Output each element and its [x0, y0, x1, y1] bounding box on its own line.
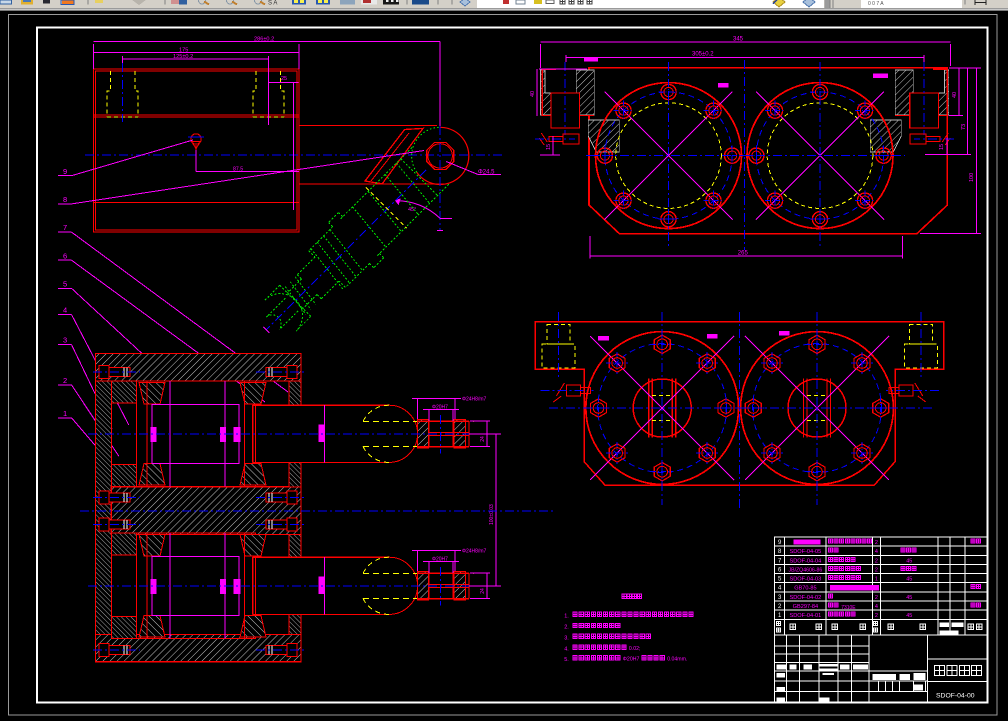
svg-text:2: 2: [63, 376, 67, 385]
svg-text:24: 24: [480, 588, 486, 594]
svg-text:265: 265: [738, 251, 749, 257]
svg-text:0 0 7 A: 0 0 7 A: [868, 1, 884, 7]
svg-text:SDOF-04-00: SDOF-04-00: [936, 692, 975, 699]
svg-text:Φ24.5: Φ24.5: [478, 170, 495, 176]
svg-text:4.: 4.: [564, 646, 569, 652]
svg-text:5.: 5.: [564, 657, 569, 663]
svg-text:2: 2: [875, 558, 878, 564]
svg-text:100: 100: [969, 173, 975, 182]
svg-text:45: 45: [906, 576, 912, 582]
svg-text:24: 24: [480, 436, 486, 442]
svg-text:6: 6: [63, 251, 67, 260]
svg-text:32: 32: [873, 586, 879, 592]
svg-text:40: 40: [952, 92, 958, 98]
svg-text:286±0.2: 286±0.2: [254, 37, 274, 43]
svg-text:15: 15: [939, 144, 945, 150]
svg-text:Φ20H7: Φ20H7: [432, 556, 448, 562]
svg-text:SDOF-04-04: SDOF-04-04: [790, 558, 822, 564]
svg-text:73: 73: [961, 124, 967, 130]
svg-text:45: 45: [906, 613, 912, 619]
svg-text:Φ24H8/m7: Φ24H8/m7: [462, 548, 486, 554]
svg-text:2.: 2.: [564, 625, 569, 631]
svg-text:GB297-84: GB297-84: [793, 604, 819, 610]
svg-text:2: 2: [875, 568, 878, 574]
svg-text:345: 345: [733, 37, 744, 43]
svg-text:305±0.2: 305±0.2: [692, 52, 714, 58]
svg-text:Φ20H7: Φ20H7: [623, 657, 640, 663]
svg-text:5: 5: [63, 279, 67, 288]
svg-text:175: 175: [179, 48, 188, 54]
svg-text:4: 4: [63, 306, 67, 315]
svg-text:7310E: 7310E: [841, 605, 856, 611]
svg-text:4: 4: [875, 549, 878, 555]
svg-text:25: 25: [281, 76, 287, 82]
svg-text:45: 45: [906, 558, 912, 564]
svg-text:2: 2: [875, 595, 878, 601]
svg-text:S A: S A: [268, 1, 277, 7]
svg-text:4: 4: [875, 604, 878, 610]
svg-text:100±0.03: 100±0.03: [489, 504, 495, 525]
svg-text:0.04mm.: 0.04mm.: [667, 657, 687, 663]
svg-text:125±0.2: 125±0.2: [173, 54, 193, 60]
svg-text:GB70-85: GB70-85: [794, 586, 816, 592]
svg-text:1: 1: [875, 576, 878, 582]
svg-text:SDOF-04-01: SDOF-04-01: [790, 613, 822, 619]
svg-text:2: 2: [875, 540, 878, 546]
svg-text:9: 9: [63, 167, 67, 176]
svg-text:SDOF-04-03: SDOF-04-03: [790, 576, 822, 582]
svg-text:40: 40: [530, 91, 536, 97]
svg-text:0.02;: 0.02;: [629, 646, 641, 652]
svg-text:Φ24H8/m7: Φ24H8/m7: [462, 396, 486, 402]
svg-text:45: 45: [906, 595, 912, 601]
svg-text:SDOF-04-02: SDOF-04-02: [790, 595, 822, 601]
svg-text:8: 8: [63, 195, 67, 204]
svg-text:15: 15: [546, 144, 552, 150]
svg-text:JB/ZQ4606-86: JB/ZQ4606-86: [789, 568, 823, 574]
svg-text:7: 7: [63, 223, 67, 232]
svg-text:1: 1: [63, 409, 67, 418]
svg-text:87.5: 87.5: [233, 167, 243, 173]
svg-text:1.: 1.: [564, 613, 569, 619]
svg-text:3.: 3.: [564, 635, 569, 641]
svg-text:3: 3: [63, 336, 67, 345]
svg-text:Φ20H7: Φ20H7: [432, 404, 448, 410]
svg-text:2: 2: [875, 613, 878, 619]
svg-text:SDOF-04-05: SDOF-04-05: [790, 549, 822, 555]
